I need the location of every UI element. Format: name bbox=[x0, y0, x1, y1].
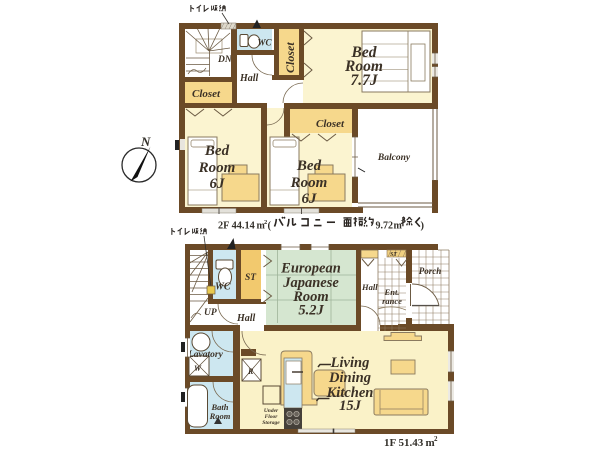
svg-text:WC: WC bbox=[215, 282, 231, 293]
svg-text:Hall: Hall bbox=[361, 282, 378, 292]
svg-text:rance: rance bbox=[382, 296, 402, 306]
svg-text:UP: UP bbox=[204, 308, 217, 318]
svg-text:DN: DN bbox=[217, 55, 233, 65]
svg-text:W: W bbox=[194, 364, 202, 373]
svg-text:Storage: Storage bbox=[262, 420, 280, 426]
svg-text:2: 2 bbox=[434, 435, 438, 443]
svg-text:R: R bbox=[247, 367, 254, 376]
svg-text:5.2J: 5.2J bbox=[298, 303, 324, 319]
svg-text:Room: Room bbox=[198, 160, 236, 176]
svg-text:Room: Room bbox=[290, 175, 328, 191]
svg-text:ST: ST bbox=[245, 273, 257, 283]
svg-text:Hall: Hall bbox=[236, 313, 256, 324]
svg-text:ST: ST bbox=[390, 252, 397, 258]
svg-text:Porch: Porch bbox=[419, 266, 442, 276]
svg-text:Balcony: Balcony bbox=[377, 153, 411, 163]
svg-text:Closet: Closet bbox=[283, 42, 297, 73]
svg-text:Closet: Closet bbox=[192, 88, 221, 100]
svg-text:15J: 15J bbox=[339, 398, 362, 414]
svg-text:Dining: Dining bbox=[328, 370, 371, 386]
svg-text:): ) bbox=[421, 221, 425, 232]
svg-text:Lavatory: Lavatory bbox=[187, 350, 224, 360]
svg-text:Room: Room bbox=[209, 411, 231, 421]
svg-text:Bed: Bed bbox=[204, 143, 230, 159]
svg-text:Bed: Bed bbox=[296, 158, 322, 174]
svg-text:7.7J: 7.7J bbox=[350, 72, 378, 89]
svg-text:Living: Living bbox=[330, 355, 370, 371]
svg-text:6J: 6J bbox=[302, 191, 318, 207]
svg-text:1F 51.43: 1F 51.43 bbox=[384, 437, 424, 449]
svg-text:9.72: 9.72 bbox=[376, 221, 394, 232]
svg-text:2F 44.14: 2F 44.14 bbox=[218, 221, 255, 232]
svg-text:Hall: Hall bbox=[239, 73, 259, 84]
svg-text:6J: 6J bbox=[210, 176, 226, 192]
svg-text:Closet: Closet bbox=[316, 118, 345, 130]
svg-text:WC: WC bbox=[258, 38, 273, 48]
svg-text:N: N bbox=[140, 134, 151, 149]
svg-text:(: ( bbox=[268, 221, 272, 232]
